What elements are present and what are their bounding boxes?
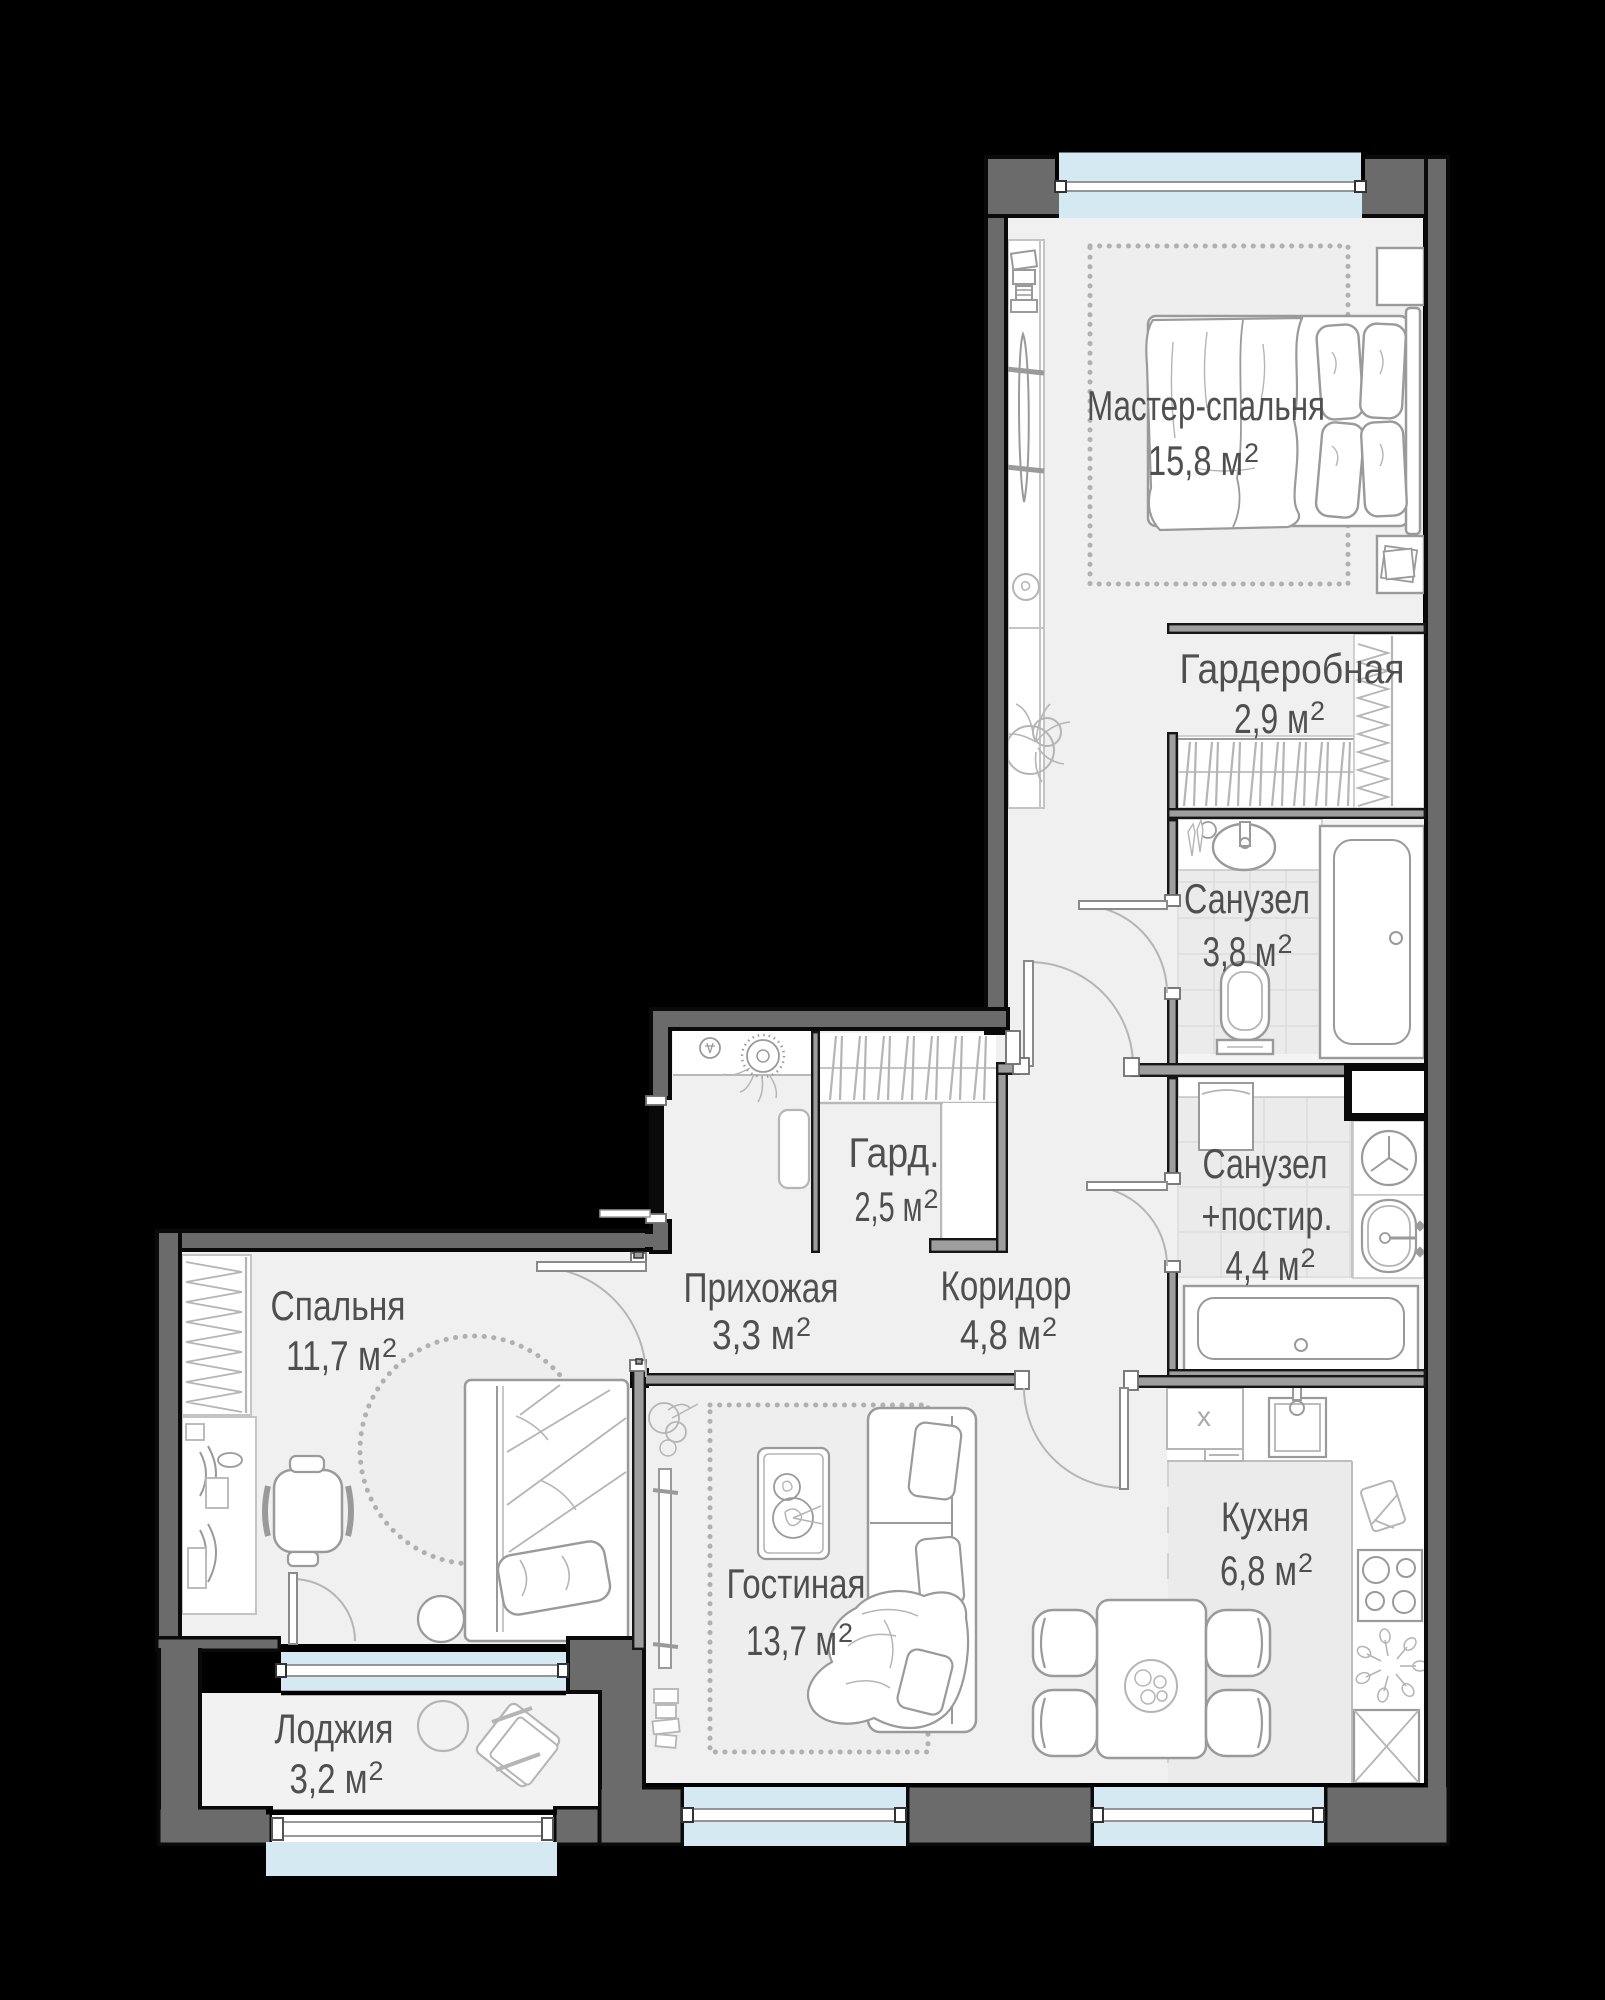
svg-text:x: x — [1197, 1401, 1211, 1432]
svg-text:2,5 м: 2,5 м — [855, 1183, 923, 1230]
svg-text:+постир.: +постир. — [1202, 1192, 1333, 1239]
svg-text:Гостиная: Гостиная — [727, 1560, 866, 1607]
svg-text:Мастер-спальня: Мастер-спальня — [1087, 382, 1325, 429]
svg-text:2: 2 — [369, 1756, 384, 1786]
svg-text:2: 2 — [1298, 1548, 1313, 1578]
svg-text:2: 2 — [1310, 696, 1325, 726]
svg-text:3,2 м: 3,2 м — [290, 1755, 368, 1802]
svg-text:Лоджия: Лоджия — [275, 1705, 394, 1752]
svg-text:2: 2 — [382, 1333, 397, 1363]
svg-text:2: 2 — [1278, 929, 1293, 959]
svg-text:Санузел: Санузел — [1184, 875, 1310, 922]
svg-text:2: 2 — [838, 1618, 853, 1648]
svg-text:Гардеробная: Гардеробная — [1180, 645, 1405, 692]
svg-text:13,7 м: 13,7 м — [746, 1617, 837, 1664]
svg-text:2: 2 — [1042, 1312, 1057, 1342]
svg-text:2: 2 — [796, 1312, 811, 1342]
svg-text:11,7 м: 11,7 м — [286, 1332, 381, 1379]
svg-text:4,8 м: 4,8 м — [960, 1311, 1041, 1358]
svg-text:Прихожая: Прихожая — [684, 1264, 839, 1311]
svg-text:Кухня: Кухня — [1221, 1493, 1309, 1540]
svg-text:Коридор: Коридор — [941, 1262, 1072, 1309]
svg-text:Гард.: Гард. — [849, 1129, 940, 1176]
svg-text:3,8 м: 3,8 м — [1203, 928, 1277, 975]
svg-text:2,9 м: 2,9 м — [1234, 695, 1309, 742]
svg-text:2: 2 — [924, 1184, 939, 1214]
svg-text:Спальня: Спальня — [271, 1282, 406, 1329]
svg-text:Санузел: Санузел — [1203, 1140, 1328, 1187]
svg-text:2: 2 — [1301, 1243, 1316, 1273]
svg-text:3,3 м: 3,3 м — [712, 1311, 795, 1358]
svg-text:6,8 м: 6,8 м — [1220, 1547, 1297, 1594]
svg-text:15,8 м: 15,8 м — [1148, 437, 1243, 484]
svg-text:2: 2 — [1244, 438, 1259, 468]
svg-text:4,4 м: 4,4 м — [1226, 1242, 1300, 1289]
